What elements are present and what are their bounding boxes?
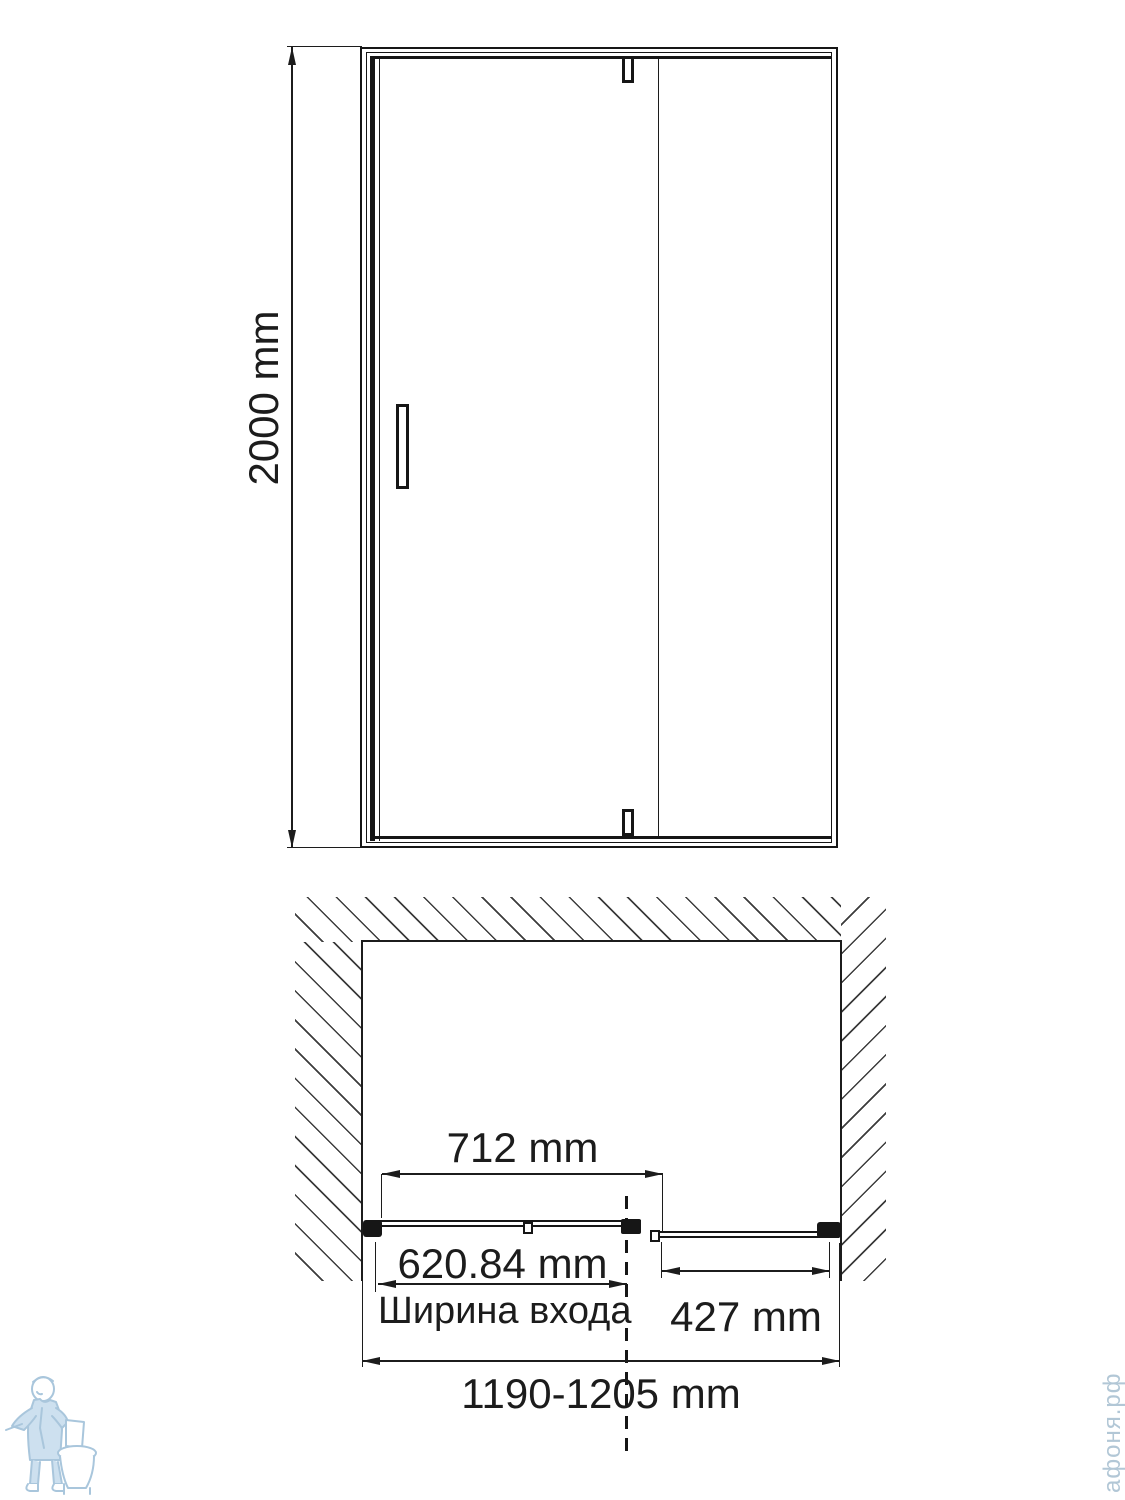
plumber-toilet-icon bbox=[4, 1368, 104, 1498]
hinge-top bbox=[622, 56, 634, 83]
wall-profile-left bbox=[370, 56, 375, 841]
dim-arrow bbox=[812, 1267, 830, 1275]
fixed-glass-plan bbox=[651, 1231, 839, 1238]
hinge-bottom bbox=[622, 809, 634, 836]
dim-extension-line bbox=[662, 1174, 663, 1231]
technical-drawing-canvas: 2000 mm bbox=[0, 0, 1125, 1500]
dim-extension-line bbox=[381, 1174, 382, 1218]
dim-arrow bbox=[382, 1170, 400, 1178]
entrance-width-dim-label: 620.84 mm bbox=[378, 1242, 627, 1286]
overall-width-dim-label: 1190-1205 mm bbox=[362, 1372, 840, 1416]
dim-line-fixed-width bbox=[662, 1270, 830, 1272]
wall-bracket-right bbox=[817, 1222, 841, 1238]
top-rail bbox=[370, 56, 832, 59]
wall-hatch-top bbox=[295, 897, 841, 942]
wall-hatch-left bbox=[295, 942, 362, 1281]
bottom-rail bbox=[370, 836, 832, 839]
wall-profile-edge bbox=[379, 56, 380, 841]
dim-extension-line bbox=[839, 1243, 840, 1367]
dim-line-overall-width bbox=[362, 1360, 840, 1362]
pivot-block bbox=[621, 1219, 641, 1234]
door-glass-plan bbox=[370, 1220, 641, 1227]
dim-extension-line bbox=[362, 1243, 363, 1367]
dim-extension-line bbox=[287, 46, 362, 47]
door-handle bbox=[396, 404, 409, 489]
dim-arrow bbox=[662, 1267, 680, 1275]
dim-line-door-width bbox=[382, 1173, 663, 1175]
plumber-logo-watermark bbox=[4, 1368, 104, 1498]
frame-inner bbox=[366, 52, 832, 843]
height-dim-label: 2000 mm bbox=[242, 303, 286, 493]
glass-connector bbox=[523, 1222, 533, 1234]
dim-line-height bbox=[291, 47, 293, 848]
dim-arrow bbox=[288, 47, 296, 65]
fixed-width-dim-label: 427 mm bbox=[640, 1295, 852, 1339]
wall-hatch-right bbox=[841, 897, 886, 1281]
dim-extension-line bbox=[375, 1242, 376, 1292]
dim-arrow bbox=[645, 1170, 663, 1178]
wall-edge-top bbox=[362, 940, 842, 942]
dim-arrow bbox=[362, 1357, 380, 1365]
door-panel-edge bbox=[658, 59, 659, 836]
door-width-dim-label: 712 mm bbox=[382, 1126, 663, 1170]
dim-arrow bbox=[288, 830, 296, 848]
site-watermark-text: афоня.рф bbox=[1100, 1373, 1125, 1493]
dim-arrow bbox=[822, 1357, 840, 1365]
wall-bracket-left bbox=[363, 1220, 382, 1237]
entrance-width-caption: Ширина входа bbox=[378, 1291, 627, 1331]
fixed-glass-clamp bbox=[650, 1230, 660, 1242]
dim-extension-line bbox=[287, 847, 362, 848]
